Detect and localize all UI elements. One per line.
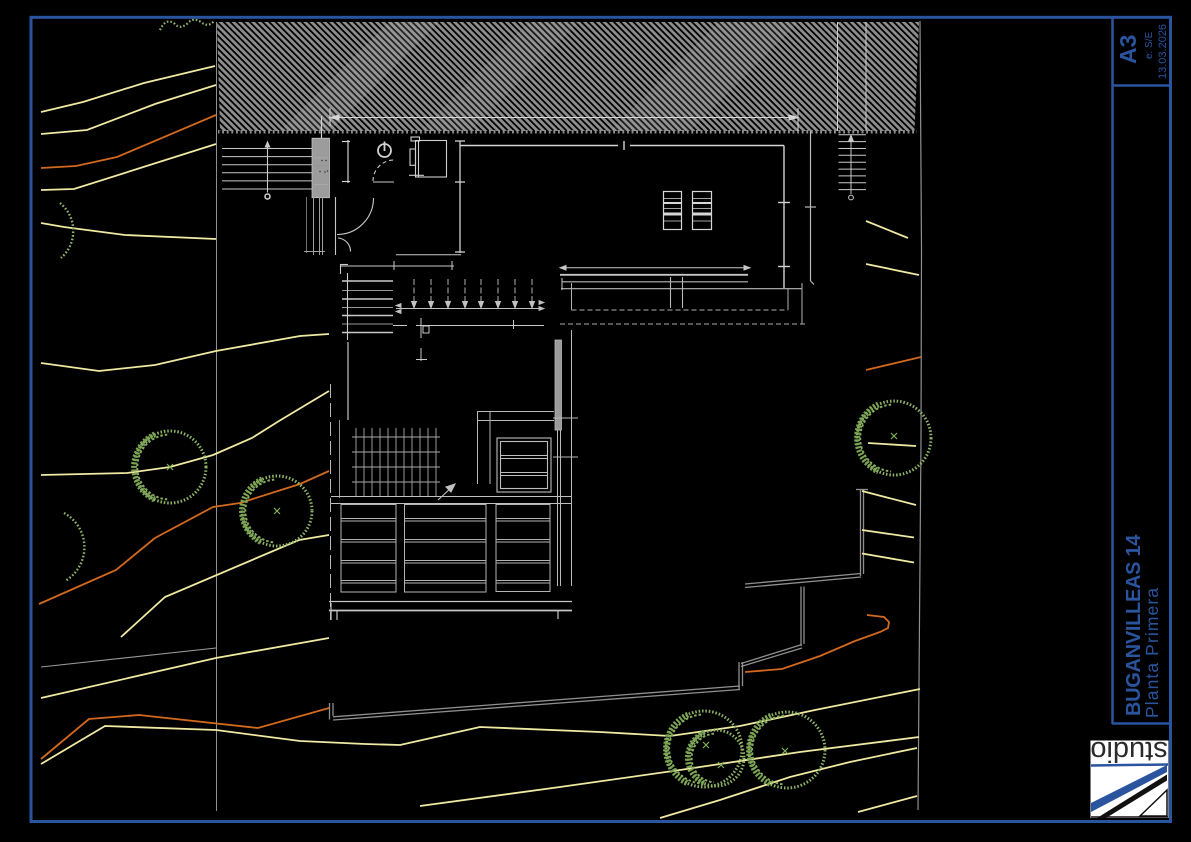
svg-text:A3: A3: [1115, 35, 1141, 64]
svg-text:Planta Primera: Planta Primera: [1142, 587, 1162, 718]
svg-text:13.03.2026: 13.03.2026: [1157, 24, 1169, 79]
svg-text:studio: studio: [1090, 735, 1167, 767]
svg-text:e: S/E: e: S/E: [1144, 31, 1155, 59]
